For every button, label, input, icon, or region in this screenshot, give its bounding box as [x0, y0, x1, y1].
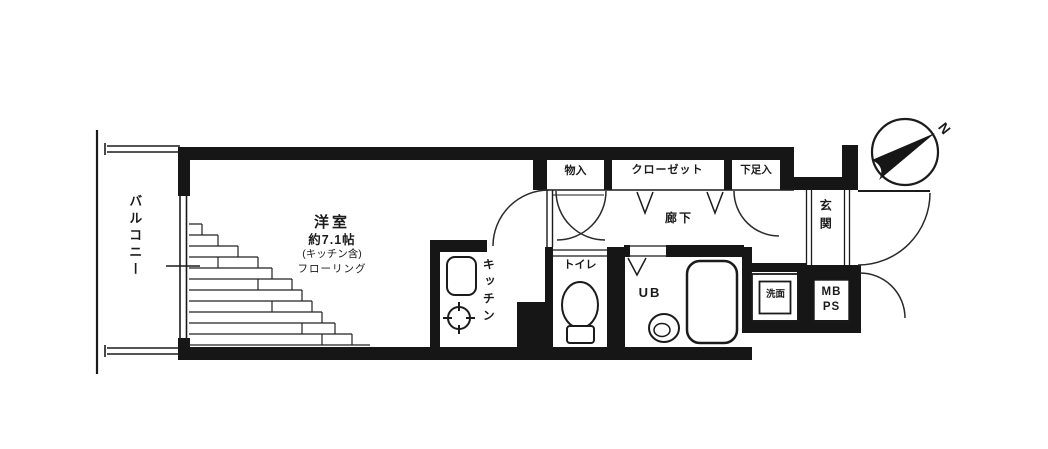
room-text-block: 洋室 約7.1帖 (キッチン含) フローリング — [262, 215, 402, 275]
room-flooring-label: フローリング — [262, 264, 402, 276]
door-arc-room — [493, 190, 549, 246]
toilet-label: トイレ — [553, 259, 607, 271]
compass-needle — [872, 133, 935, 180]
wall-bath-top-right — [666, 245, 744, 257]
toilet-bowl-icon — [562, 282, 598, 343]
wall-shoe-right — [780, 147, 794, 190]
washstand-label: 洗面 — [759, 290, 792, 300]
closet-door-v-left — [637, 192, 653, 213]
balcony-rail-top — [105, 143, 180, 155]
bath-door-panel — [630, 246, 666, 256]
meter-pipe-space-label: MB PS — [814, 285, 849, 315]
wall-toilet-right — [607, 247, 625, 347]
wall-washstand-top — [742, 263, 806, 272]
storage-label: 物入 — [547, 165, 604, 177]
room-door-leaf — [547, 190, 553, 247]
wall-bottom — [178, 347, 752, 360]
toilet-door-line — [553, 250, 607, 256]
floor-plan: バルコニー 洋室 約7.1帖 (キッチン含) フローリング キッチン 物入 クロ… — [0, 0, 1048, 449]
floor-plan-drawing — [0, 0, 1048, 449]
door-arc-shoe-cabinet — [734, 191, 779, 236]
entrance-step-line — [807, 190, 812, 265]
wall-closet-shoe-divider — [724, 160, 732, 190]
balcony-rail-bottom — [105, 345, 180, 357]
door-arc-meter-box — [860, 273, 905, 318]
wall-storage-left — [533, 160, 547, 190]
wall-bath-top-left — [624, 245, 630, 257]
room-name-label: 洋室 — [262, 215, 402, 232]
wall-top — [178, 147, 794, 160]
room-size-label: 約7.1帖 — [262, 234, 402, 248]
door-arc-storage-left — [557, 191, 606, 240]
unit-bath-label: UB — [629, 286, 671, 300]
wall-step-top — [793, 177, 842, 190]
room-note-label: (キッチン含) — [262, 249, 402, 261]
wall-entrance-bottom — [806, 265, 861, 280]
hallway-label: 廊下 — [653, 212, 705, 225]
wall-column-top-right — [842, 145, 858, 190]
compass-icon — [872, 119, 938, 185]
entrance-label: 玄関 — [818, 199, 831, 235]
wall-kitchen-top — [430, 240, 487, 252]
kitchen-label: キッチン — [481, 258, 494, 326]
window-panes — [180, 196, 187, 340]
door-arc-entrance — [858, 193, 930, 265]
wall-toilet-left — [545, 247, 553, 347]
stove-burner-icon — [443, 302, 475, 334]
washbasin-icon — [649, 314, 679, 342]
balcony-label: バルコニー — [127, 194, 141, 279]
closet-door-v-right — [707, 192, 723, 213]
bathtub-icon — [687, 261, 737, 343]
wall-kitchen-left — [430, 240, 440, 347]
closet-label: クローゼット — [611, 164, 724, 176]
entrance-threshold-line — [845, 190, 850, 265]
door-arc-storage-right — [556, 191, 605, 240]
kitchen-sink-icon — [447, 257, 476, 295]
shoe-cabinet-label: 下足入 — [732, 165, 780, 177]
wall-left-upper — [178, 147, 190, 196]
bath-door-v — [628, 258, 646, 275]
